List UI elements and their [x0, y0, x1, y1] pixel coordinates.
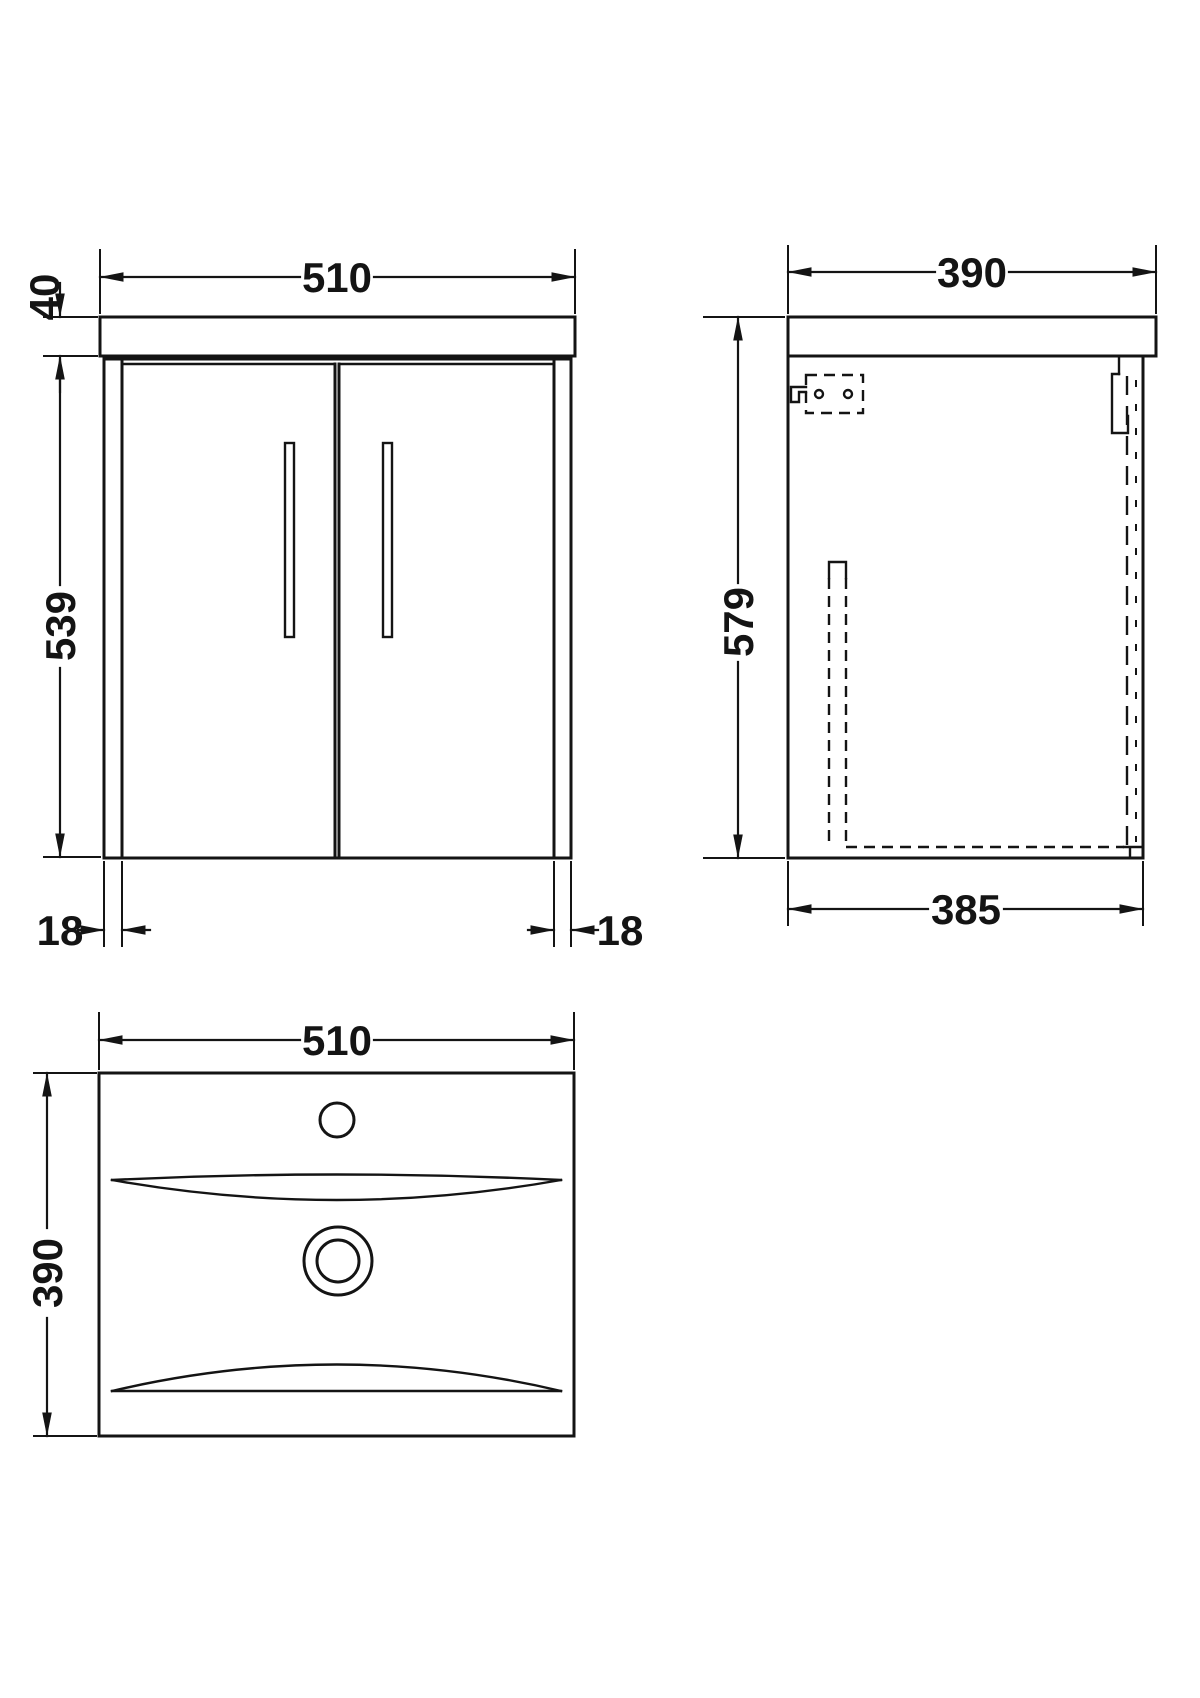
- front-view: 510 40: [21, 250, 643, 954]
- wall-bracket: [791, 375, 863, 413]
- plan-width-dimension: 510: [99, 1013, 574, 1069]
- bracket-screw-icon: [815, 390, 823, 398]
- front-cabinet: [104, 359, 571, 858]
- plan-width-label: 510: [302, 1017, 372, 1064]
- basin-rear-edge-curve: [112, 1365, 561, 1392]
- wall-hook: [791, 387, 806, 402]
- bracket-screw-icon: [844, 390, 852, 398]
- interior-hidden-lines: [829, 562, 1124, 847]
- plan-depth-label: 390: [24, 1238, 71, 1308]
- tap-hole: [320, 1103, 354, 1137]
- side-worktop: [788, 317, 1156, 356]
- side-cabinet: [788, 356, 1143, 858]
- front-right-panel-label: 18: [597, 907, 644, 954]
- front-left-panel-dimension: 18: [37, 862, 150, 954]
- plan-depth-dimension: 390: [24, 1073, 96, 1436]
- side-height-label: 579: [715, 587, 762, 657]
- side-cabinet-depth-dimension: 385: [788, 862, 1143, 933]
- basin-outline: [99, 1073, 574, 1436]
- side-height-dimension: 579: [704, 317, 784, 858]
- front-height-dimension: 539: [37, 360, 100, 857]
- drain-inner-ring: [317, 1240, 359, 1282]
- drain: [304, 1227, 372, 1295]
- drain-outer-ring: [304, 1227, 372, 1295]
- side-view: 390: [704, 246, 1156, 933]
- side-cabinet-depth-label: 385: [931, 886, 1001, 933]
- right-door-handle: [383, 443, 392, 637]
- bottom-front-rail: [1124, 847, 1143, 858]
- front-width-label: 510: [302, 254, 372, 301]
- plan-view: 510 390: [24, 1013, 574, 1436]
- front-worktop: [100, 317, 575, 356]
- side-depth-label: 390: [937, 249, 1007, 296]
- side-depth-dimension: 390: [788, 246, 1156, 313]
- front-worktop-thickness-label: 40: [21, 274, 68, 321]
- front-left-panel-label: 18: [37, 907, 84, 954]
- technical-drawing-page: 510 40: [0, 0, 1200, 1698]
- front-height-label: 539: [37, 591, 84, 661]
- front-right-panel-dimension: 18: [528, 862, 643, 954]
- vanity-dimension-drawing: 510 40: [0, 0, 1200, 1698]
- basin-front-edge-curve: [112, 1175, 561, 1201]
- front-width-dimension: 510: [100, 250, 575, 313]
- left-door-handle: [285, 443, 294, 637]
- hinge-bracket: [1112, 374, 1128, 433]
